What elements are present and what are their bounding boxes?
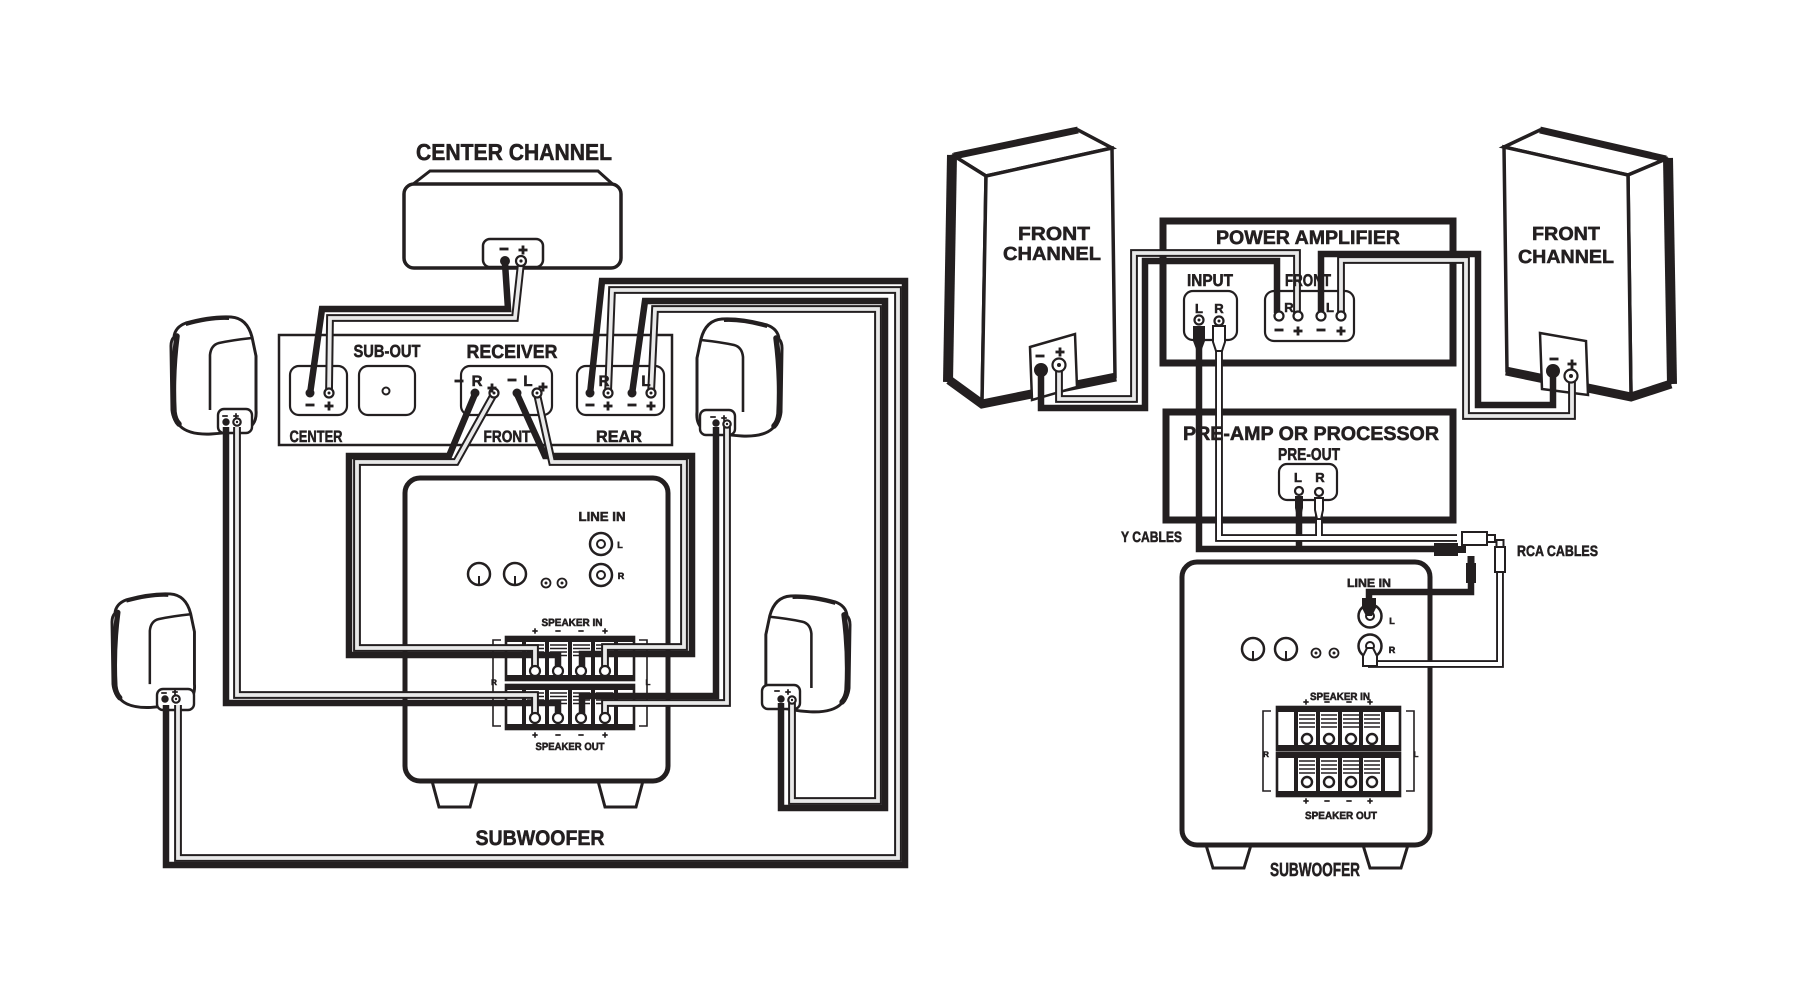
svg-text:L: L <box>1389 616 1395 626</box>
svg-text:SUBWOOFER: SUBWOOFER <box>1270 860 1360 881</box>
svg-text:SPEAKER IN: SPEAKER IN <box>542 617 603 629</box>
svg-text:R: R <box>1315 470 1325 485</box>
svg-text:SPEAKER OUT: SPEAKER OUT <box>1305 810 1378 822</box>
svg-text:SPEAKER OUT: SPEAKER OUT <box>536 741 606 753</box>
svg-text:L: L <box>617 540 623 550</box>
svg-text:L: L <box>646 678 651 687</box>
svg-text:LINE IN: LINE IN <box>1347 576 1391 590</box>
svg-text:INPUT: INPUT <box>1187 271 1234 290</box>
svg-text:REAR: REAR <box>596 428 642 446</box>
svg-text:PRE-AMP OR PROCESSOR: PRE-AMP OR PROCESSOR <box>1183 423 1439 445</box>
svg-text:R: R <box>1389 645 1396 655</box>
svg-text:FRONT: FRONT <box>1018 224 1090 245</box>
svg-text:L: L <box>523 373 532 390</box>
svg-text:CENTER CHANNEL: CENTER CHANNEL <box>416 139 612 165</box>
svg-text:R: R <box>1214 301 1224 316</box>
svg-text:R: R <box>599 373 610 390</box>
svg-text:RECEIVER: RECEIVER <box>467 342 558 363</box>
svg-text:L: L <box>1195 301 1203 316</box>
svg-text:R: R <box>472 373 483 390</box>
svg-text:L: L <box>641 373 650 390</box>
svg-text:FRONT: FRONT <box>1285 271 1331 290</box>
svg-text:PRE-OUT: PRE-OUT <box>1278 445 1340 464</box>
svg-text:SPEAKER IN: SPEAKER IN <box>1310 691 1370 703</box>
svg-text:CHANNEL: CHANNEL <box>1003 244 1101 265</box>
svg-text:FRONT: FRONT <box>484 428 531 446</box>
svg-text:LINE IN: LINE IN <box>579 509 626 524</box>
svg-text:R: R <box>618 571 625 581</box>
svg-text:L: L <box>1294 470 1302 485</box>
svg-text:FRONT: FRONT <box>1532 224 1600 245</box>
svg-text:R: R <box>1284 300 1294 315</box>
svg-text:R: R <box>491 678 497 687</box>
svg-text:L: L <box>1326 300 1334 315</box>
svg-text:CENTER: CENTER <box>290 428 343 446</box>
svg-text:Y CABLES: Y CABLES <box>1121 529 1182 546</box>
svg-text:CHANNEL: CHANNEL <box>1518 247 1614 268</box>
svg-text:L: L <box>1414 750 1419 759</box>
svg-text:R: R <box>1263 750 1269 759</box>
svg-text:POWER AMPLIFIER: POWER AMPLIFIER <box>1216 227 1400 249</box>
svg-text:SUBWOOFER: SUBWOOFER <box>476 827 605 850</box>
svg-text:RCA CABLES: RCA CABLES <box>1517 543 1598 560</box>
svg-text:SUB-OUT: SUB-OUT <box>354 341 421 361</box>
